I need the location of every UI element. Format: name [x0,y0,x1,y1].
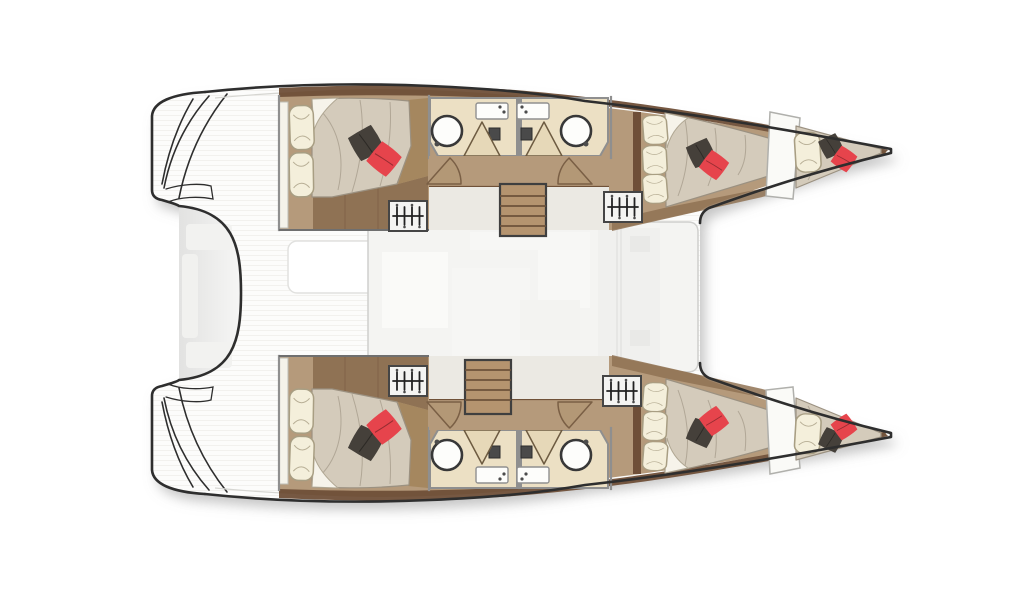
bow-berth [794,126,881,188]
shower [561,116,591,146]
pillow [642,174,668,203]
bathrooms [430,98,608,156]
cockpit-table [288,241,380,293]
hatch-symbol [604,192,642,222]
pillow [642,115,668,144]
shower-seat [521,128,532,140]
companionway-stairs-port [500,184,546,236]
pillow [794,132,822,173]
hull-starboard [279,355,888,501]
sink [517,103,549,119]
hatch-symbol [389,366,427,396]
hatch-symbol [603,376,641,406]
pillow [289,153,314,197]
saloon [368,222,698,372]
pillow [289,105,315,150]
shower [432,116,462,146]
hull-port [279,85,888,231]
floorplan-canvas [0,0,1024,600]
hatch-symbol [389,201,427,231]
catamaran-floorplan [0,0,1024,600]
pillow [642,145,668,174]
companionway-stairs-starboard [465,360,511,414]
